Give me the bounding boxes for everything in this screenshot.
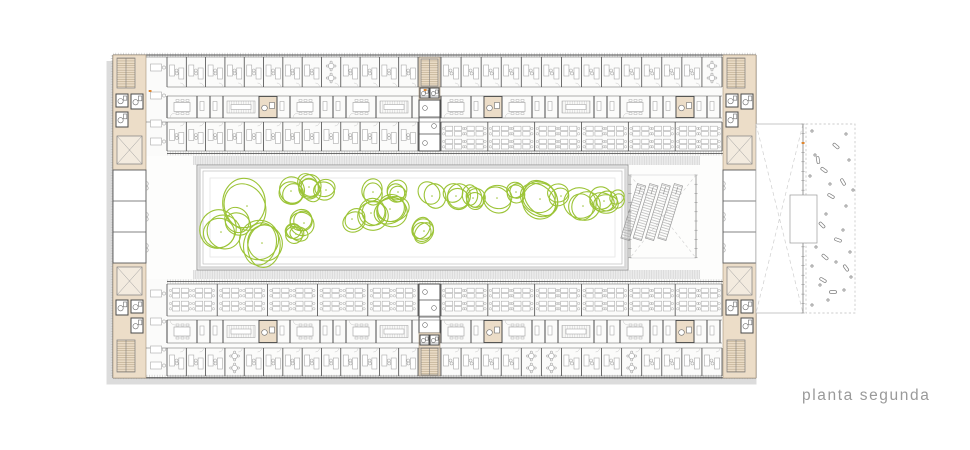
floorplan-page: planta segunda bbox=[0, 0, 970, 450]
annex bbox=[756, 124, 855, 313]
core-mid-top bbox=[419, 57, 440, 151]
core-mid-bottom bbox=[419, 284, 440, 376]
plan-title: planta segunda bbox=[802, 387, 930, 405]
floorplan-drawing bbox=[0, 0, 970, 450]
mid-rooms-left bbox=[113, 170, 148, 263]
mid-rooms-right bbox=[723, 170, 756, 263]
